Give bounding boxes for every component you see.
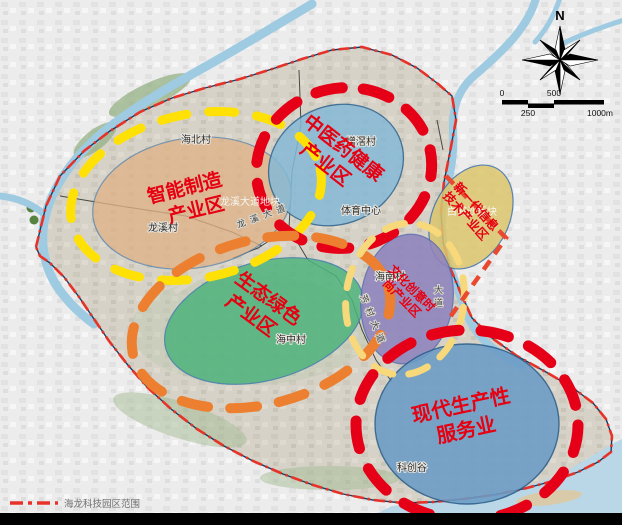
scale-1000m: 1000m	[587, 108, 613, 118]
legend-boundary-label: 海龙科技园区范围	[64, 498, 140, 510]
plot-label-longxi-avenue: 龙溪大道地块	[220, 195, 280, 208]
label-kechuanggu: 科创谷	[397, 461, 427, 474]
bottom-black-bar	[0, 513, 622, 525]
scale-500: 500	[547, 88, 561, 98]
label-sports-center: 体育中心	[341, 204, 381, 217]
scale-250: 250	[521, 108, 535, 118]
scale-0: 0	[500, 88, 505, 98]
label-haizhong-village: 海中村	[276, 333, 306, 346]
label-haibei-village: 海北村	[181, 133, 211, 146]
compass-north-label: N	[555, 8, 564, 23]
map-canvas: 龙溪大道地块 白鹤沙板块 海北村 增滘村 龙溪村 体育中心 海中村 海南村 科创…	[0, 0, 622, 525]
planning-map: 龙溪大道地块 白鹤沙板块 海北村 增滘村 龙溪村 体育中心 海中村 海南村 科创…	[0, 0, 622, 525]
